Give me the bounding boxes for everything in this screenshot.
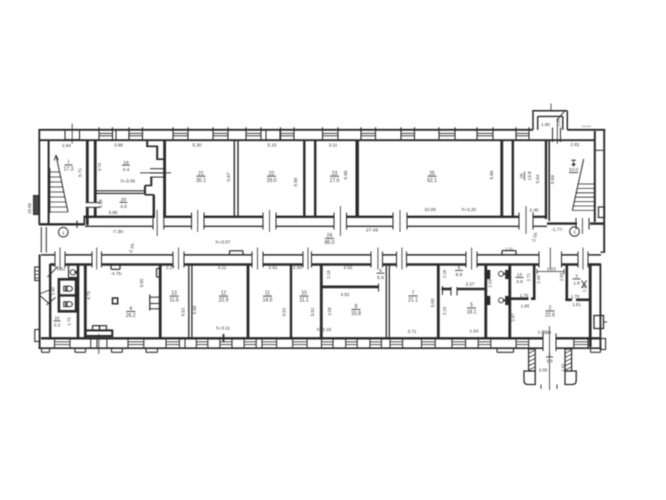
svg-text:2.81: 2.81 bbox=[571, 142, 580, 147]
svg-text:h=3.19: h=3.19 bbox=[317, 327, 332, 332]
svg-text:29.0: 29.0 bbox=[267, 178, 277, 184]
svg-text:26: 26 bbox=[519, 173, 525, 179]
svg-text:4.52: 4.52 bbox=[344, 265, 353, 270]
svg-text:4.11: 4.11 bbox=[218, 265, 227, 270]
svg-text:5.52: 5.52 bbox=[180, 307, 185, 316]
svg-text:-7.30-: -7.30- bbox=[112, 229, 125, 235]
svg-text:8.9: 8.9 bbox=[456, 272, 463, 278]
svg-text:1.73: 1.73 bbox=[67, 317, 72, 326]
svg-text:2.45: 2.45 bbox=[530, 208, 539, 213]
svg-text:2.23: 2.23 bbox=[547, 266, 556, 271]
svg-text:1.92: 1.92 bbox=[561, 363, 566, 372]
svg-text:11.1: 11.1 bbox=[299, 298, 309, 304]
svg-text:5.30: 5.30 bbox=[193, 143, 202, 148]
svg-text:1.64: 1.64 bbox=[470, 329, 479, 334]
svg-text:5.65: 5.65 bbox=[293, 177, 298, 186]
svg-text:16.66: 16.66 bbox=[27, 202, 32, 214]
svg-text:5.66: 5.66 bbox=[489, 170, 494, 179]
svg-text:2.84: 2.84 bbox=[62, 143, 71, 148]
svg-text:26.2: 26.2 bbox=[126, 313, 136, 319]
svg-text:5.69: 5.69 bbox=[550, 175, 555, 184]
svg-text:4.75: 4.75 bbox=[86, 291, 91, 300]
svg-text:2.61: 2.61 bbox=[269, 265, 278, 270]
svg-text:h=3.20: h=3.20 bbox=[462, 207, 477, 212]
svg-text:-1.77-: -1.77- bbox=[551, 227, 563, 232]
svg-text:1.65: 1.65 bbox=[556, 118, 561, 127]
svg-text:3.3: 3.3 bbox=[54, 323, 61, 328]
svg-text:14: 14 bbox=[517, 272, 523, 277]
svg-text:3.74: 3.74 bbox=[97, 162, 102, 171]
svg-text:1.75: 1.75 bbox=[520, 293, 529, 298]
svg-text:1.51: 1.51 bbox=[57, 267, 66, 272]
svg-text:2.71: 2.71 bbox=[526, 273, 531, 282]
svg-text:3.19: 3.19 bbox=[442, 306, 447, 315]
svg-text:2.87: 2.87 bbox=[511, 313, 516, 322]
svg-text:1.70: 1.70 bbox=[571, 294, 580, 299]
svg-text:4.9: 4.9 bbox=[516, 279, 523, 284]
svg-text:30.1: 30.1 bbox=[196, 178, 206, 184]
svg-text:17.6: 17.6 bbox=[330, 178, 340, 184]
svg-text:3.58: 3.58 bbox=[327, 307, 332, 316]
svg-text:5.67: 5.67 bbox=[226, 172, 231, 181]
svg-text:1.80: 1.80 bbox=[542, 330, 551, 335]
svg-text:5.52: 5.52 bbox=[310, 307, 315, 316]
svg-text:2.27: 2.27 bbox=[166, 265, 175, 270]
svg-text:5.56: 5.56 bbox=[139, 278, 144, 287]
svg-text:10.99: 10.99 bbox=[424, 207, 436, 212]
svg-text:1.40: 1.40 bbox=[50, 286, 55, 295]
svg-text:17.3: 17.3 bbox=[64, 167, 74, 173]
svg-text:1: 1 bbox=[573, 230, 576, 235]
svg-text:1.58: 1.58 bbox=[98, 199, 103, 208]
svg-text:1.85: 1.85 bbox=[521, 303, 530, 308]
svg-text:22.9: 22.9 bbox=[219, 298, 229, 304]
svg-text:2.18: 2.18 bbox=[442, 269, 447, 278]
svg-text:2.43: 2.43 bbox=[488, 279, 493, 288]
svg-text:86.0: 86.0 bbox=[325, 240, 335, 246]
svg-text:1.81: 1.81 bbox=[572, 302, 581, 307]
svg-text:2.18: 2.18 bbox=[326, 270, 331, 279]
svg-text:1.8: 1.8 bbox=[573, 281, 580, 286]
svg-text:5.15: 5.15 bbox=[268, 143, 277, 148]
svg-text:15.8: 15.8 bbox=[351, 311, 361, 317]
svg-text:h=3.11: h=3.11 bbox=[216, 325, 230, 330]
svg-text:4.4: 4.4 bbox=[123, 167, 130, 173]
svg-text:5.71: 5.71 bbox=[77, 168, 82, 177]
svg-text:2.48: 2.48 bbox=[536, 275, 541, 284]
svg-text:27.48: 27.48 bbox=[366, 228, 378, 234]
svg-text:5.66: 5.66 bbox=[343, 170, 348, 179]
svg-text:18.1: 18.1 bbox=[467, 310, 477, 316]
svg-text:5.58: 5.58 bbox=[192, 305, 197, 314]
svg-text:14.5: 14.5 bbox=[263, 298, 273, 304]
svg-text:16: 16 bbox=[54, 316, 60, 321]
svg-text:1.90: 1.90 bbox=[541, 122, 550, 127]
svg-text:2.00: 2.00 bbox=[293, 265, 302, 270]
svg-text:11.6: 11.6 bbox=[169, 298, 179, 304]
svg-text:22.6: 22.6 bbox=[545, 313, 555, 319]
svg-text:13.8: 13.8 bbox=[527, 171, 533, 181]
svg-text:3.71: 3.71 bbox=[408, 329, 417, 334]
svg-text:2.05: 2.05 bbox=[539, 367, 548, 372]
svg-text:3.86: 3.86 bbox=[114, 142, 123, 147]
svg-text:3.86: 3.86 bbox=[109, 210, 118, 215]
svg-text:2.68: 2.68 bbox=[559, 272, 564, 281]
svg-text:4.5: 4.5 bbox=[120, 204, 127, 210]
svg-text:h=3.07: h=3.07 bbox=[216, 240, 231, 246]
svg-text:3.11: 3.11 bbox=[329, 143, 338, 148]
svg-text:3.27: 3.27 bbox=[466, 282, 475, 287]
svg-text:5.64: 5.64 bbox=[535, 174, 540, 183]
svg-text:5.52: 5.52 bbox=[282, 307, 287, 316]
svg-text:5.68: 5.68 bbox=[430, 298, 435, 307]
svg-text:21.1: 21.1 bbox=[408, 298, 418, 304]
svg-text:1: 1 bbox=[62, 230, 65, 235]
svg-text:3: 3 bbox=[575, 274, 578, 279]
svg-text:h=3.06: h=3.06 bbox=[121, 179, 136, 184]
svg-text:62.1: 62.1 bbox=[427, 178, 437, 184]
svg-text:-4.76-: -4.76- bbox=[110, 271, 122, 276]
svg-text:5.9: 5.9 bbox=[377, 275, 384, 281]
svg-text:4.52: 4.52 bbox=[341, 292, 350, 297]
